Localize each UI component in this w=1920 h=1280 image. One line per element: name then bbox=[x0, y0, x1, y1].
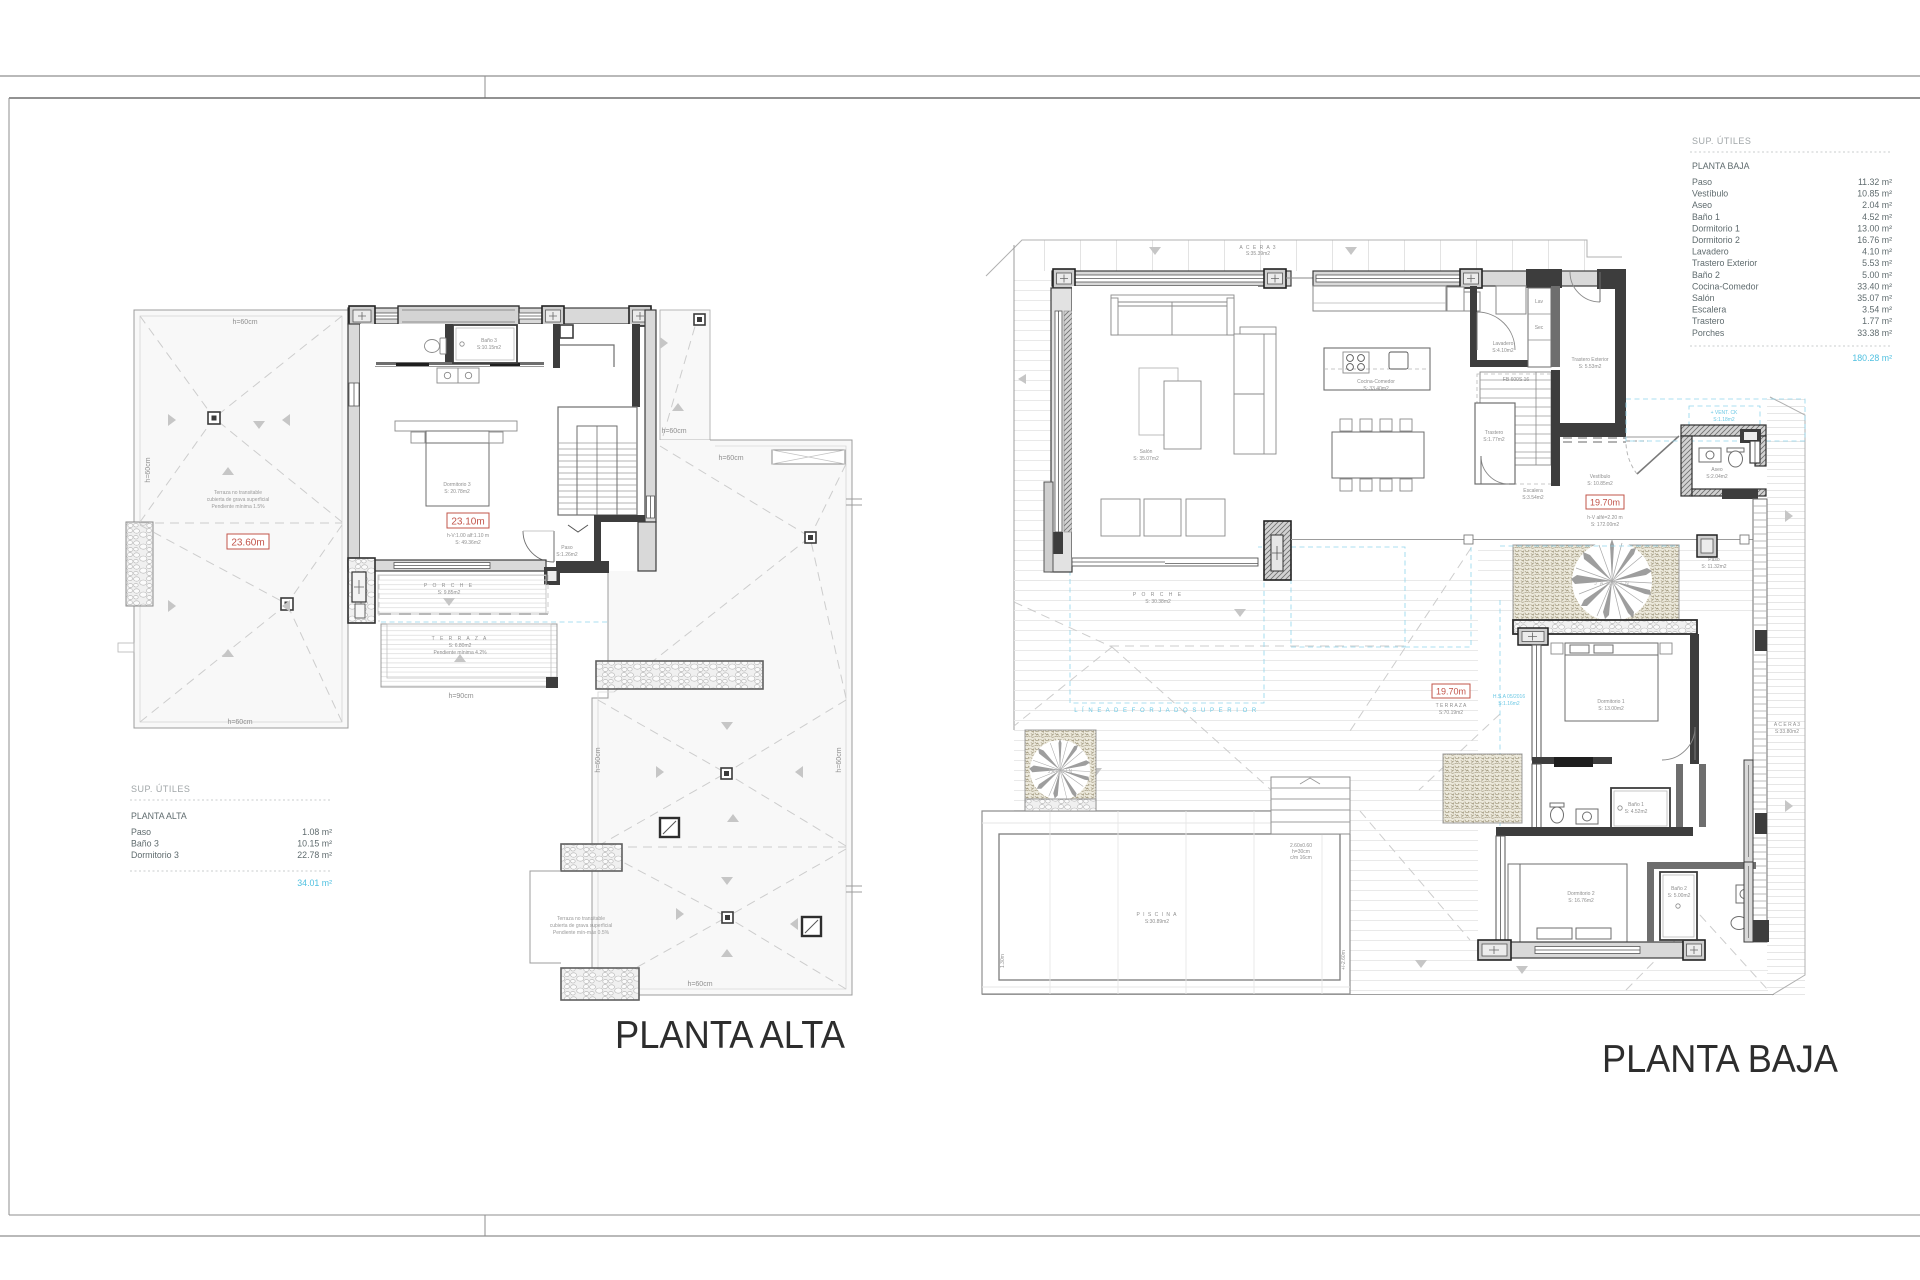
svg-text:S:10.15m2: S:10.15m2 bbox=[477, 345, 501, 351]
svg-text:Trastero Exterior: Trastero Exterior bbox=[1692, 258, 1757, 268]
svg-text:c/m 16cm: c/m 16cm bbox=[1290, 855, 1312, 861]
svg-text:S: 6.80m2: S: 6.80m2 bbox=[449, 643, 472, 649]
svg-text:3.54 m²: 3.54 m² bbox=[1862, 305, 1892, 315]
svg-text:10.85 m²: 10.85 m² bbox=[1857, 189, 1892, 199]
svg-text:1.08 m²: 1.08 m² bbox=[302, 827, 332, 837]
svg-text:Lavadero: Lavadero bbox=[1692, 247, 1729, 257]
svg-text:Escalera: Escalera bbox=[1692, 305, 1726, 315]
svg-text:h=60cm: h=60cm bbox=[836, 747, 843, 772]
svg-text:S:1.26m2: S:1.26m2 bbox=[556, 552, 578, 558]
svg-text:Paso: Paso bbox=[1708, 557, 1720, 563]
svg-text:h=60cm: h=60cm bbox=[227, 719, 252, 726]
svg-text:Porches: Porches bbox=[1692, 328, 1725, 338]
svg-text:S: 33.40m2: S: 33.40m2 bbox=[1363, 386, 1389, 392]
svg-text:4.52 m²: 4.52 m² bbox=[1862, 212, 1892, 222]
svg-text:Baño 2: Baño 2 bbox=[1692, 270, 1720, 280]
svg-text:S:30.89m2: S:30.89m2 bbox=[1145, 919, 1169, 925]
svg-text:180.28 m²: 180.28 m² bbox=[1852, 353, 1892, 363]
svg-text:PLANTA ALTA: PLANTA ALTA bbox=[615, 1014, 845, 1057]
svg-text:S: 16.76m2: S: 16.76m2 bbox=[1568, 898, 1594, 904]
svg-text:S: 49.36m2: S: 49.36m2 bbox=[455, 540, 481, 546]
svg-text:Cocina-Comedor: Cocina-Comedor bbox=[1357, 379, 1395, 385]
svg-text:Trastero: Trastero bbox=[1692, 316, 1725, 326]
svg-text:SUP. ÚTILES: SUP. ÚTILES bbox=[131, 784, 190, 794]
svg-text:S:4.10m2: S:4.10m2 bbox=[1492, 348, 1514, 354]
svg-text:h=90cm: h=90cm bbox=[448, 693, 473, 700]
svg-text:2.04 m²: 2.04 m² bbox=[1862, 200, 1892, 210]
svg-text:Trastero: Trastero bbox=[1485, 430, 1504, 436]
svg-text:T E R R A Z A: T E R R A Z A bbox=[1436, 703, 1467, 709]
svg-text:Dormitorio 2: Dormitorio 2 bbox=[1567, 891, 1594, 897]
svg-text:S: 4.52m2: S: 4.52m2 bbox=[1625, 809, 1648, 815]
svg-text:23.60m: 23.60m bbox=[231, 538, 264, 549]
svg-text:Trastero Exterior: Trastero Exterior bbox=[1571, 357, 1608, 363]
svg-text:Baño 3: Baño 3 bbox=[481, 338, 497, 344]
svg-text:1.30m: 1.30m bbox=[1000, 954, 1006, 968]
svg-text:cubierta de grava superficial: cubierta de grava superficial bbox=[550, 923, 613, 929]
svg-text:H.S.A 05/2016: H.S.A 05/2016 bbox=[1493, 694, 1525, 700]
svg-text:P O R C H E: P O R C H E bbox=[1133, 592, 1183, 598]
svg-text:h=60cm: h=60cm bbox=[595, 747, 602, 772]
svg-text:Lavadero: Lavadero bbox=[1493, 341, 1514, 347]
svg-text:35.07 m²: 35.07 m² bbox=[1857, 293, 1892, 303]
svg-text:FB 600S 16: FB 600S 16 bbox=[1503, 377, 1530, 383]
svg-text:Salón: Salón bbox=[1140, 449, 1153, 455]
svg-text:h=60cm: h=60cm bbox=[232, 319, 257, 326]
svg-text:S:3.54m2: S:3.54m2 bbox=[1522, 495, 1544, 501]
svg-text:h=60cm: h=60cm bbox=[718, 455, 743, 462]
svg-text:PLANTA BAJA: PLANTA BAJA bbox=[1692, 161, 1750, 171]
svg-text:h=60cm: h=60cm bbox=[145, 457, 152, 482]
svg-text:SUP. ÚTILES: SUP. ÚTILES bbox=[1692, 136, 1751, 146]
svg-text:Dormitorio 3: Dormitorio 3 bbox=[443, 482, 470, 488]
svg-text:11.32 m²: 11.32 m² bbox=[1858, 177, 1892, 187]
svg-text:J A R D I N: J A R D I N bbox=[1594, 581, 1629, 587]
svg-text:T E R R A Z A: T E R R A Z A bbox=[432, 636, 489, 642]
svg-text:Lav: Lav bbox=[1535, 299, 1544, 305]
svg-text:S: 5.00m2: S: 5.00m2 bbox=[1668, 893, 1691, 899]
svg-text:PLANTA ALTA: PLANTA ALTA bbox=[131, 811, 187, 821]
svg-text:Paso: Paso bbox=[561, 545, 573, 551]
svg-text:10.15 m²: 10.15 m² bbox=[297, 839, 332, 849]
svg-text:S:1.77m2: S:1.77m2 bbox=[1483, 437, 1505, 443]
svg-text:Salón: Salón bbox=[1692, 293, 1715, 303]
svg-text:Baño 3: Baño 3 bbox=[131, 839, 159, 849]
svg-text:22.78 m²: 22.78 m² bbox=[297, 850, 332, 860]
svg-text:Pendiente mín-máx 0.5%: Pendiente mín-máx 0.5% bbox=[553, 930, 610, 936]
svg-text:A C E R A 3: A C E R A 3 bbox=[1774, 722, 1800, 728]
svg-text:13.00 m²: 13.00 m² bbox=[1857, 223, 1892, 233]
svg-text:23.10m: 23.10m bbox=[451, 517, 484, 528]
svg-text:Aseo: Aseo bbox=[1692, 200, 1712, 210]
svg-text:19.70m: 19.70m bbox=[1590, 498, 1620, 508]
svg-text:S:1.16m2: S:1.16m2 bbox=[1498, 701, 1520, 707]
svg-text:P O R C H E: P O R C H E bbox=[424, 583, 474, 589]
svg-text:Vestíbulo: Vestíbulo bbox=[1590, 474, 1611, 480]
svg-text:Paso: Paso bbox=[131, 827, 151, 837]
svg-text:P I S C I N A: P I S C I N A bbox=[1137, 912, 1178, 918]
svg-text:S: 9.85m2: S: 9.85m2 bbox=[438, 590, 461, 596]
svg-text:S:2.04m2: S:2.04m2 bbox=[1706, 474, 1728, 480]
svg-text:34.01 m²: 34.01 m² bbox=[297, 878, 332, 888]
svg-text:Paso: Paso bbox=[1692, 177, 1712, 187]
svg-text:Dormitorio 3: Dormitorio 3 bbox=[131, 850, 179, 860]
svg-text:h-V:1.00 alf:1.10 m: h-V:1.00 alf:1.10 m bbox=[447, 533, 489, 539]
svg-text:19.70m: 19.70m bbox=[1436, 687, 1466, 697]
svg-text:L Í N E A D E F O R J A D O: L Í N E A D E F O R J A D O S U P E R I … bbox=[1074, 707, 1258, 714]
svg-text:S: 35.07m2: S: 35.07m2 bbox=[1133, 456, 1159, 462]
svg-text:Dormitorio 2: Dormitorio 2 bbox=[1692, 235, 1740, 245]
svg-text:S: 30.38m2: S: 30.38m2 bbox=[1145, 599, 1171, 605]
svg-text:Terraza no transitable: Terraza no transitable bbox=[214, 490, 262, 496]
svg-text:Baño 1: Baño 1 bbox=[1628, 802, 1644, 808]
svg-text:Baño 2: Baño 2 bbox=[1671, 886, 1687, 892]
svg-text:+ VENT. CK: + VENT. CK bbox=[1711, 410, 1738, 416]
svg-text:S:35.39m2: S:35.39m2 bbox=[1246, 251, 1270, 257]
svg-text:16.76 m²: 16.76 m² bbox=[1857, 235, 1892, 245]
svg-text:J A R D I N: J A R D I N bbox=[1048, 769, 1073, 775]
svg-text:Sec: Sec bbox=[1535, 325, 1544, 331]
svg-text:S: 10.85m2: S: 10.85m2 bbox=[1587, 481, 1613, 487]
svg-text:Dormitorio 1: Dormitorio 1 bbox=[1597, 699, 1624, 705]
svg-text:S: 172.00m2: S: 172.00m2 bbox=[1591, 522, 1620, 528]
svg-text:33.38 m²: 33.38 m² bbox=[1857, 328, 1892, 338]
svg-text:h-V alfé=2.20 m: h-V alfé=2.20 m bbox=[1587, 515, 1622, 521]
svg-text:S:1.18m2: S:1.18m2 bbox=[1713, 417, 1735, 423]
svg-text:+/-2.60m: +/-2.60m bbox=[1341, 950, 1347, 970]
svg-text:S:33.80m2: S:33.80m2 bbox=[1775, 729, 1799, 735]
svg-text:Vestíbulo: Vestíbulo bbox=[1692, 189, 1728, 199]
svg-text:Pendiente mínima 1.5%: Pendiente mínima 1.5% bbox=[211, 504, 265, 510]
svg-text:1.77 m²: 1.77 m² bbox=[1862, 316, 1892, 326]
svg-text:5.53 m²: 5.53 m² bbox=[1862, 258, 1892, 268]
svg-text:S: 13.00m2: S: 13.00m2 bbox=[1598, 706, 1624, 712]
svg-text:S: 5.53m2: S: 5.53m2 bbox=[1579, 364, 1602, 370]
svg-text:Terraza no transitable: Terraza no transitable bbox=[557, 916, 605, 922]
svg-text:cubierta de grava superficial: cubierta de grava superficial bbox=[207, 497, 270, 503]
svg-text:S:70.19m2: S:70.19m2 bbox=[1439, 710, 1463, 716]
svg-text:Dormitorio 1: Dormitorio 1 bbox=[1692, 223, 1740, 233]
svg-text:Baño 1: Baño 1 bbox=[1692, 212, 1720, 222]
svg-text:h=60cm: h=60cm bbox=[661, 428, 686, 435]
svg-text:S: 20.78m2: S: 20.78m2 bbox=[444, 489, 470, 495]
svg-text:h=60cm: h=60cm bbox=[687, 981, 712, 988]
svg-text:Cocina-Comedor: Cocina-Comedor bbox=[1692, 281, 1759, 291]
svg-text:5.00 m²: 5.00 m² bbox=[1862, 270, 1892, 280]
svg-text:Aseo: Aseo bbox=[1711, 467, 1723, 473]
svg-text:Escalera: Escalera bbox=[1523, 488, 1543, 494]
svg-text:S: 11.32m2: S: 11.32m2 bbox=[1701, 564, 1726, 570]
svg-text:PLANTA BAJA: PLANTA BAJA bbox=[1602, 1038, 1838, 1081]
svg-text:4.10 m²: 4.10 m² bbox=[1862, 247, 1892, 257]
svg-text:33.40 m²: 33.40 m² bbox=[1857, 281, 1892, 291]
